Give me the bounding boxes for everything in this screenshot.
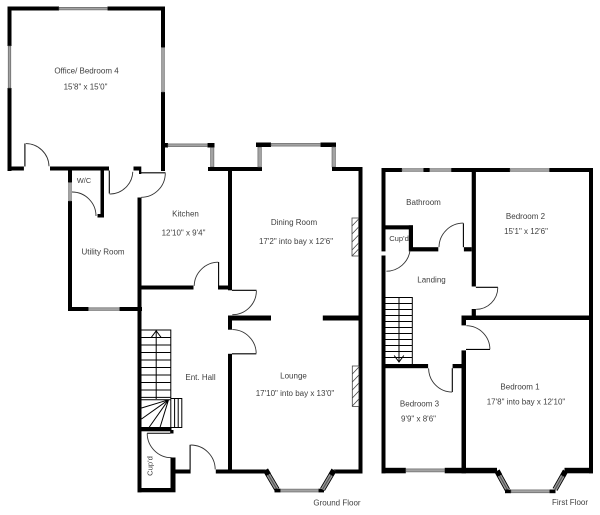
svg-text:Kitchen: Kitchen [172,210,199,219]
svg-text:Bedroom 2: Bedroom 2 [506,212,546,221]
svg-text:Bedroom 3: Bedroom 3 [400,400,440,409]
svg-text:Ground Floor: Ground Floor [313,499,360,508]
svg-text:W/C: W/C [77,176,91,185]
svg-text:First Floor: First Floor [552,498,588,507]
svg-text:Ent. Hall: Ent. Hall [185,373,215,382]
svg-text:Lounge: Lounge [280,372,307,381]
svg-text:Utility Room: Utility Room [81,248,124,257]
svg-text:Office/ Bedroom 4: Office/ Bedroom 4 [54,67,119,76]
svg-text:17'2" into bay x 12'6": 17'2" into bay x 12'6" [259,237,333,246]
svg-text:Dining Room: Dining Room [271,218,318,227]
svg-text:9'9" x 8'6": 9'9" x 8'6" [401,414,436,423]
svg-text:Cup'd: Cup'd [389,234,409,243]
svg-text:15'8" x 15'0": 15'8" x 15'0" [64,83,108,92]
svg-text:Cup'd: Cup'd [146,456,155,476]
svg-text:15'1" x 12'6": 15'1" x 12'6" [504,227,548,236]
svg-text:17'8" into bay x 12'10": 17'8" into bay x 12'10" [487,398,566,407]
svg-text:Bedroom 1: Bedroom 1 [500,383,540,392]
svg-text:Bathroom: Bathroom [406,198,441,207]
svg-text:17'10" into bay x 13'0": 17'10" into bay x 13'0" [256,389,335,398]
svg-text:Landing: Landing [417,276,445,285]
svg-text:12'10" x 9'4": 12'10" x 9'4" [162,229,206,238]
